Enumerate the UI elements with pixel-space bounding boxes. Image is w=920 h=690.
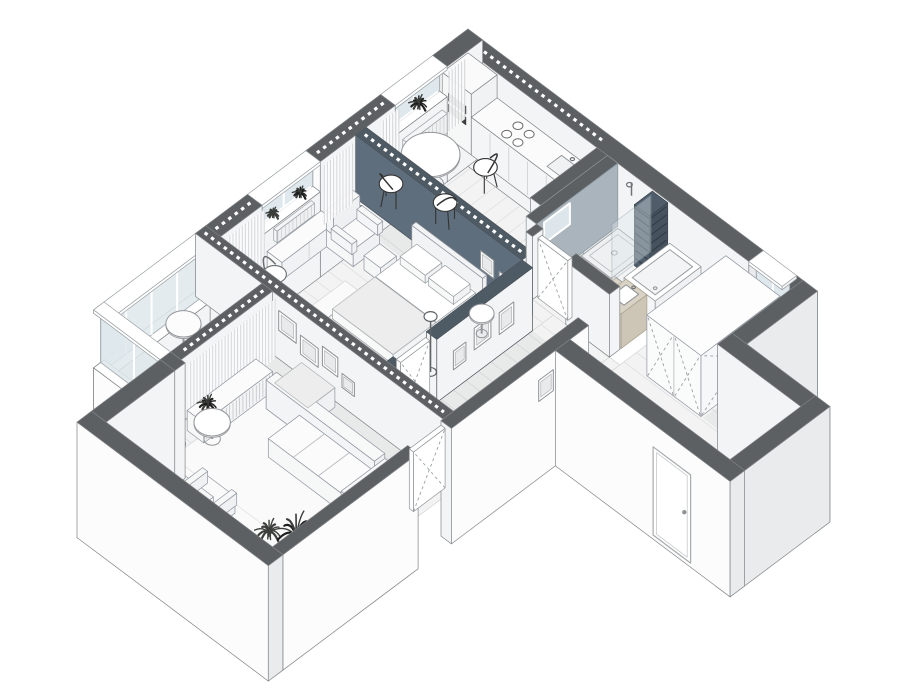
scene-items <box>77 29 830 681</box>
floor-plan-page <box>0 0 920 690</box>
isometric-floor-plan <box>0 0 920 690</box>
